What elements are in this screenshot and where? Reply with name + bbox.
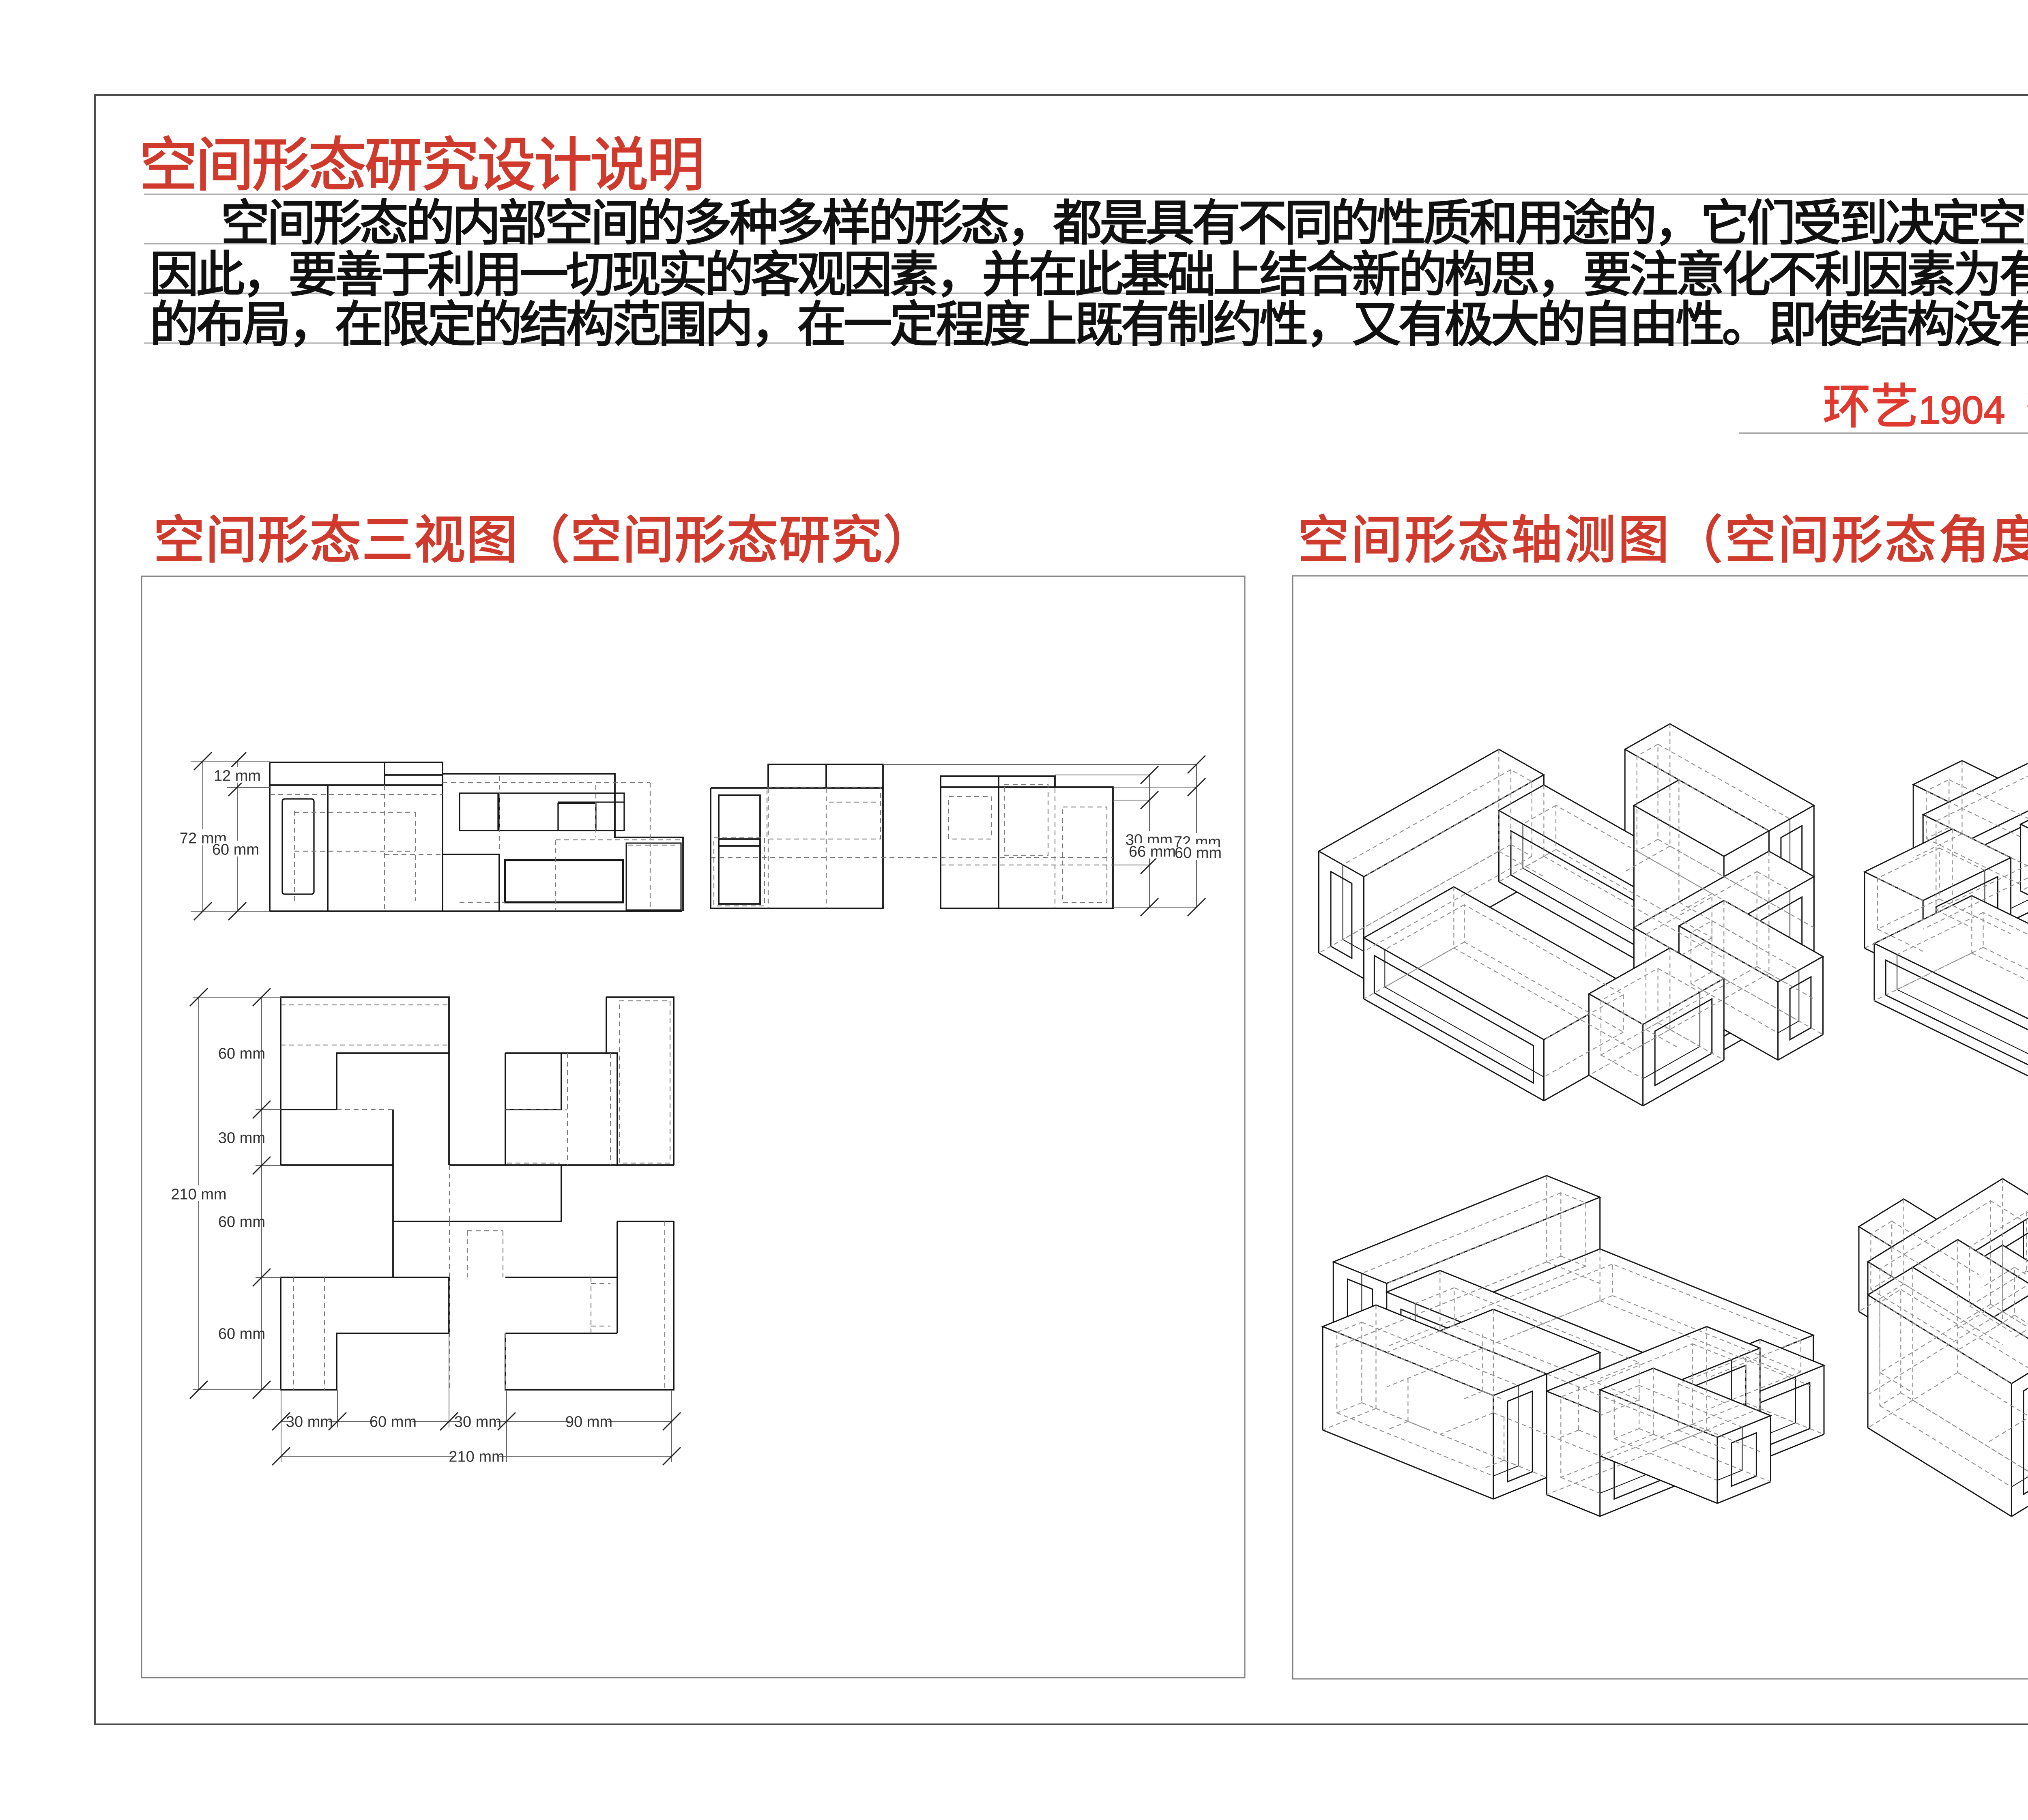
svg-text:30 mm: 30 mm (454, 1414, 501, 1431)
svg-text:因此，要善于利用一切现实的客观因素，并在此基础上结合新的构思: 因此，要善于利用一切现实的客观因素，并在此基础上结合新的构思，要注意化不利因素为… (150, 247, 2028, 302)
svg-text:66 mm: 66 mm (1129, 843, 1176, 861)
svg-text:210 mm: 210 mm (449, 1449, 504, 1466)
svg-text:12 mm: 12 mm (214, 768, 261, 785)
svg-text:30 mm: 30 mm (286, 1414, 333, 1431)
svg-text:空间形态轴测图（空间形态角度研究）: 空间形态轴测图（空间形态角度研究） (1298, 511, 2028, 569)
svg-text:60 mm: 60 mm (218, 1326, 265, 1343)
svg-text:90 mm: 90 mm (565, 1414, 612, 1431)
svg-text:30 mm: 30 mm (218, 1130, 265, 1147)
svg-text:60 mm: 60 mm (212, 841, 259, 858)
svg-text:空间形态的内部空间的多种多样的形态，都是具有不同的性质和用途: 空间形态的内部空间的多种多样的形态，都是具有不同的性质和用途的，它们受到决定空间… (221, 195, 2028, 251)
svg-text:空间形态三视图（空间形态研究）: 空间形态三视图（空间形态研究） (153, 511, 935, 569)
svg-text:空间形态研究设计说明: 空间形态研究设计说明 (139, 133, 703, 198)
svg-text:60 mm: 60 mm (218, 1214, 265, 1231)
svg-text:60 mm: 60 mm (370, 1414, 417, 1431)
svg-text:的布局，在限定的结构范围内，在一定程度上既有制约性，又有极大: 的布局，在限定的结构范围内，在一定程度上既有制约性，又有极大的自由性。即使结构没… (150, 297, 2028, 352)
svg-text:60 mm: 60 mm (218, 1045, 265, 1062)
svg-text:60 mm: 60 mm (1175, 845, 1222, 862)
svg-text:环艺1904 徐文雯 201940206: 环艺1904 徐文雯 201940206 (1823, 380, 2028, 434)
svg-text:210 mm: 210 mm (171, 1186, 226, 1203)
